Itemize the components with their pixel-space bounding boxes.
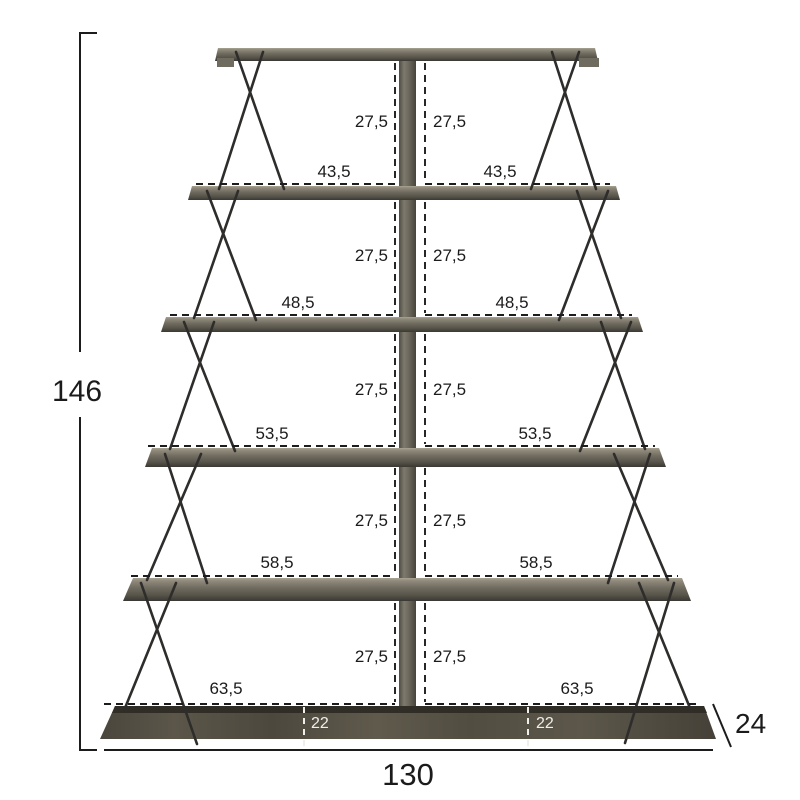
compartment-width-label-right-3: 53,5 — [518, 424, 551, 443]
shelf-3 — [161, 317, 643, 332]
depth-label: 24 — [735, 708, 766, 739]
cross-brace-left-1 — [219, 52, 263, 189]
compartment-height-label-left-3: 27,5 — [355, 380, 388, 399]
cross-brace-left-4 — [165, 454, 207, 583]
compartment-height-label-right-1: 27,5 — [433, 112, 466, 131]
depth-dim-line — [713, 704, 731, 747]
base-inset-label-left: 22 — [311, 715, 329, 732]
cross-brace-right-4 — [608, 454, 650, 583]
cross-brace-right-4 — [614, 454, 668, 580]
compartment-width-label-left-2: 48,5 — [281, 293, 314, 312]
compartment-height-label-right-3: 27,5 — [433, 380, 466, 399]
shelf-4 — [145, 448, 666, 467]
shelf-dimension-diagram: 146 130 24 27,5 27,5 27,5 27,5 27,5 27,5… — [0, 0, 800, 800]
compartment-width-label-left-3: 53,5 — [255, 424, 288, 443]
compartment-width-label-right-4: 58,5 — [519, 553, 552, 572]
compartment-height-label-right-4: 27,5 — [433, 511, 466, 530]
cross-brace-left-4 — [147, 454, 201, 580]
compartment-width-label-right-2: 48,5 — [495, 293, 528, 312]
compartment-height-label-right-2: 27,5 — [433, 246, 466, 265]
compartment-height-label-left-2: 27,5 — [355, 246, 388, 265]
base-shelf-top-edge — [112, 706, 707, 713]
compartment-height-label-left-4: 27,5 — [355, 511, 388, 530]
overall-height-label: 146 — [52, 375, 102, 408]
shelf-1 — [215, 48, 598, 61]
compartment-height-label-left-5: 27,5 — [355, 647, 388, 666]
cross-brace-left-1 — [236, 52, 284, 189]
shelf-end-cap — [579, 58, 599, 67]
center-post — [399, 48, 416, 738]
compartment-width-label-right-1: 43,5 — [483, 162, 516, 181]
compartment-width-label-right-5: 63,5 — [560, 679, 593, 698]
shelf-end-cap — [217, 58, 234, 67]
compartment-width-label-left-4: 58,5 — [260, 553, 293, 572]
compartment-height-label-left-1: 27,5 — [355, 112, 388, 131]
cross-brace-left-5 — [125, 583, 176, 708]
compartment-width-label-left-5: 63,5 — [209, 679, 242, 698]
shelf-unit — [100, 48, 716, 744]
overall-width-label: 130 — [382, 757, 434, 792]
compartment-height-label-right-5: 27,5 — [433, 647, 466, 666]
base-inset-label-right: 22 — [536, 715, 554, 732]
cross-brace-right-1 — [531, 52, 579, 189]
cross-brace-right-5 — [639, 583, 690, 708]
shelf-2 — [188, 186, 620, 200]
compartment-width-label-left-1: 43,5 — [317, 162, 350, 181]
cross-brace-right-1 — [552, 52, 596, 189]
shelf-5 — [123, 578, 691, 601]
